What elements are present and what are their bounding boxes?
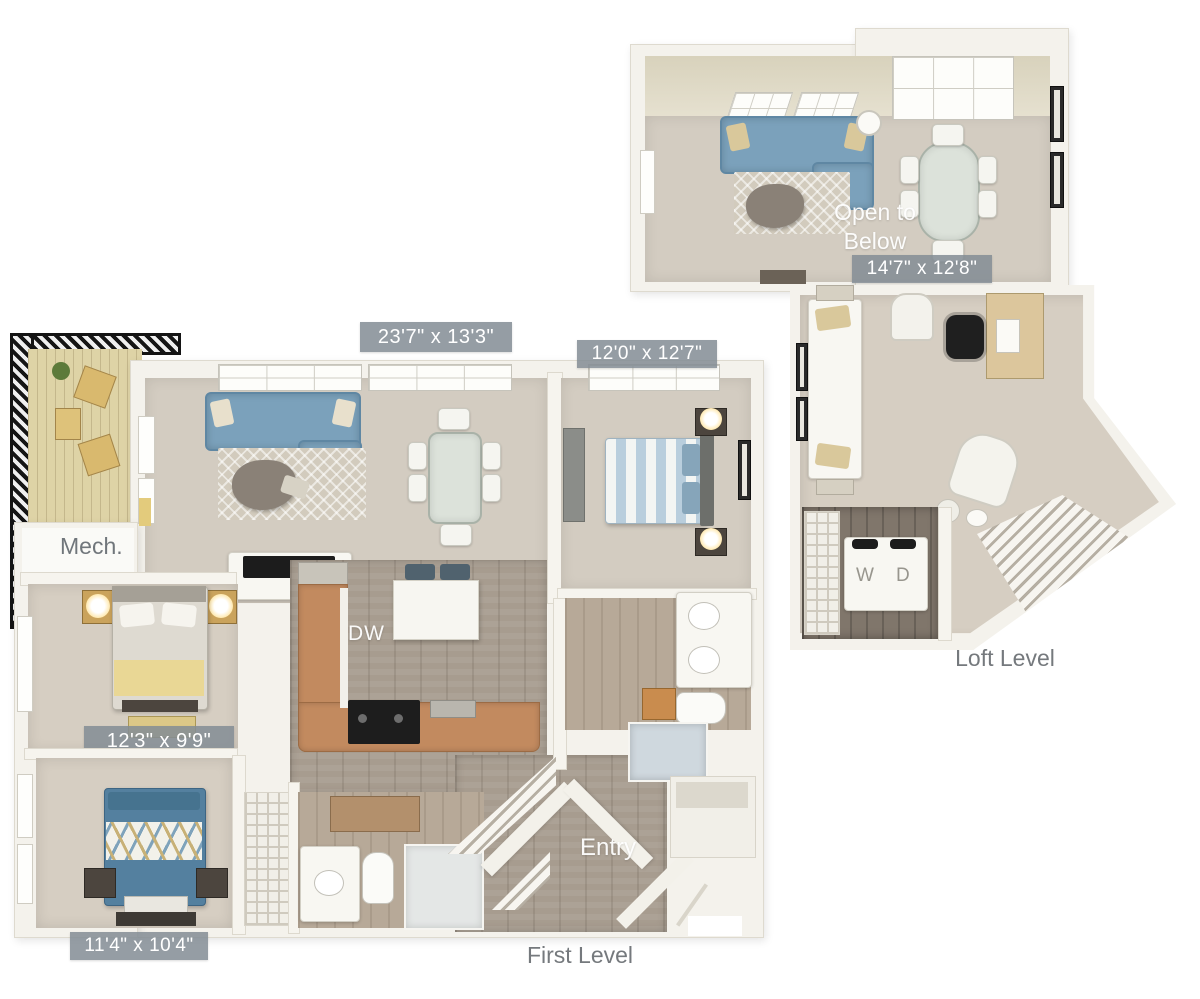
laundry-shelving	[804, 511, 840, 635]
loft-dining-chair-right-1	[978, 156, 997, 184]
washer-label: W	[856, 565, 874, 587]
loft-desk-laptop	[996, 319, 1020, 353]
bathroom-bottom-sink	[314, 870, 344, 896]
loft-window-farleft	[640, 150, 655, 214]
entry-label: Entry	[580, 834, 636, 862]
balcony-plant	[52, 362, 70, 380]
loft-mid-wall-art-2	[796, 397, 808, 441]
loft-stairwell-opening	[760, 270, 806, 284]
stove-burner-1	[358, 714, 367, 723]
bedroom-mid-window	[17, 616, 33, 712]
kitchen-sink	[430, 700, 476, 718]
bedroom-mid-bench	[122, 700, 198, 712]
loft-dining-chair-top	[932, 124, 964, 146]
bedroom-top-closet	[563, 428, 585, 522]
loft-mid-wall-art-1	[796, 343, 808, 391]
loft-toilet	[966, 509, 988, 527]
living-dim-badge: 23'7" x 13'3"	[360, 322, 512, 352]
dishwasher-label: DW	[348, 622, 385, 646]
bedroom-bottom-pillows	[108, 792, 200, 810]
dining-chair-top	[438, 408, 470, 430]
entry-door-opening	[688, 916, 742, 936]
bathroom-bottom-toilet	[362, 852, 394, 904]
loft-daybed-frame-top	[816, 285, 854, 301]
bedroom-mid-headboard	[112, 586, 206, 602]
living-wall-art	[139, 498, 151, 526]
dryer-label: D	[896, 565, 910, 587]
bedroom-bottom-nightstand-2	[196, 868, 228, 898]
floorplan-canvas: Mech.	[0, 0, 1200, 999]
stove-burner-2	[394, 714, 403, 723]
bedroom-mid-blanket	[114, 660, 204, 696]
loft-level-caption: Loft Level	[930, 645, 1080, 672]
bedroom-mid-lamp-1	[86, 594, 110, 618]
kitchen-stool-2	[440, 564, 470, 580]
kitchen-fridge	[298, 562, 348, 586]
bedroom-mid-pillow-1	[119, 602, 155, 627]
loft-dim-badge: 14'7" x 12'8"	[852, 255, 992, 283]
living-window-left	[138, 416, 155, 474]
loft-ceiling-light	[856, 110, 882, 136]
laundry-wall	[938, 507, 952, 641]
mech-room-label: Mech.	[60, 533, 123, 560]
bathroom-bottom-shower	[404, 844, 484, 930]
bedroom-bottom-rug	[116, 912, 196, 926]
dining-chair-left-1	[408, 442, 427, 470]
bathroom-bottom-woodcab	[330, 796, 420, 832]
loft-office-chair	[946, 315, 984, 359]
bedroom-bottom-dim-badge: 11'4" x 10'4"	[70, 932, 208, 960]
dryer-lid	[890, 539, 916, 549]
loft-level-plan: Open to Below 14'7" x 12'8" W	[600, 0, 1200, 700]
washer-lid	[852, 539, 878, 549]
loft-dining-chair-left-1	[900, 156, 919, 184]
bedroom-bottom-window-2	[17, 844, 33, 904]
loft-wall-art-2	[1050, 152, 1064, 208]
bedroom-mid-pillow-2	[161, 602, 197, 627]
kitchen-island	[393, 580, 479, 640]
bedroom-bottom-window-1	[17, 774, 33, 838]
bedroom-bottom-chevron-band	[106, 822, 202, 860]
bathroom-right-shower	[628, 722, 708, 782]
first-level-caption: First Level	[500, 942, 660, 969]
hall-closet-shelving	[244, 792, 290, 926]
loft-dining-chair-right-2	[978, 190, 997, 218]
entry-closet-shelf	[676, 782, 748, 808]
loft-slab-lower: W D	[790, 285, 1180, 650]
loft-wall-art-1	[1050, 86, 1064, 142]
loft-daybed-pillow-1	[815, 305, 852, 332]
loft-daybed-pillow-2	[815, 443, 852, 470]
living-window-2	[368, 364, 512, 391]
kitchen-stool-1	[405, 564, 435, 580]
kitchen-counter-edge	[340, 588, 348, 708]
open-to-below-label: Open to Below	[805, 198, 945, 256]
living-window-1	[218, 364, 362, 391]
dining-chair-right-1	[482, 442, 501, 470]
dining-table	[428, 432, 482, 524]
bedroom-bottom-nightstand-1	[84, 868, 116, 898]
loft-armchair	[890, 293, 934, 341]
dining-chair-bottom	[440, 524, 472, 546]
loft-window-right	[892, 56, 1014, 120]
loft-daybed-frame-bottom	[816, 479, 854, 495]
bedroom-mid-lamp-2	[209, 594, 233, 618]
balcony-table	[55, 408, 81, 440]
dining-chair-left-2	[408, 474, 427, 502]
dining-chair-right-2	[482, 474, 501, 502]
